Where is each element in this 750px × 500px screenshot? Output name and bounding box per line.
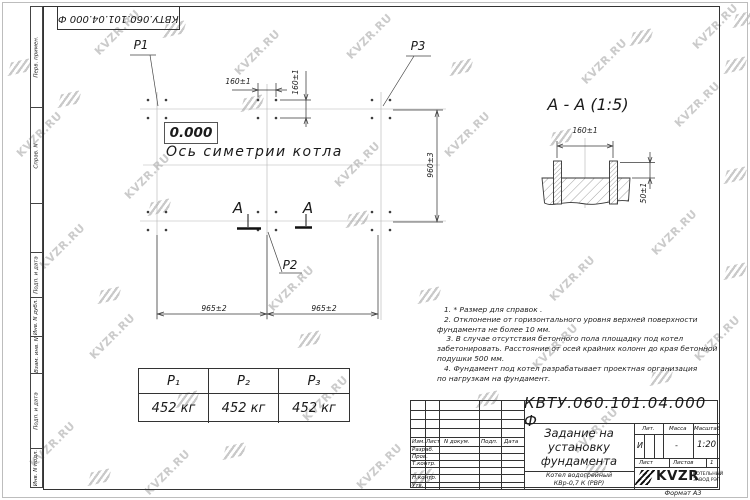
document-number: КВТУ.060.101.04.000 Ф: [524, 401, 719, 423]
lit-label: Лит.: [642, 426, 655, 432]
load-table-value: 452 кг: [209, 394, 279, 423]
load-table: Р₁ Р₂ Р₃ 452 кг 452 кг 452 кг: [138, 368, 350, 422]
lit-value: И: [637, 441, 643, 450]
title-block: Изм. Лист N докум. Подп. Дата Разраб. Пр…: [410, 400, 718, 488]
role-prov: Пров.: [412, 454, 428, 460]
section-dim-height: 50±1: [639, 175, 649, 211]
mass-label: Масса: [669, 426, 687, 432]
plan-dimensions: [157, 71, 443, 319]
format-label: Формат А3: [648, 489, 718, 497]
load-table-header: Р₁: [139, 369, 209, 394]
rev-header-list: Лист: [426, 439, 440, 445]
load-table-header: Р₃: [279, 369, 349, 394]
note-line: 3. В случае отсутствия бетонного пола пл…: [437, 334, 729, 344]
load-table-value: 452 кг: [139, 394, 209, 423]
dim-960: 960±3: [426, 145, 436, 185]
note-line: 2. Отклонение от горизонтального уровня …: [437, 315, 729, 325]
mass-value: -: [675, 441, 678, 450]
note-line: 4. Фундамент под котел разрабатывает про…: [437, 364, 729, 374]
dim-965-left: 965±2: [178, 304, 250, 313]
section-letter-left: А: [228, 199, 248, 217]
product-name: Котел водогрейный КВр-0,7 К (РВР): [524, 471, 634, 489]
load-table-value: 452 кг: [279, 394, 349, 423]
role-tkontr: Т.контр.: [412, 461, 436, 467]
load-label-p1: P1: [128, 38, 154, 52]
drawing-sheet: KVZR.RUKVZR.RUKVZR.RUKVZR.RUKVZR.RUKVZR.…: [0, 0, 750, 500]
dim-160-top: 160±1: [218, 77, 258, 86]
load-leaders: [130, 55, 431, 273]
role-razrab: Разраб.: [412, 447, 434, 453]
corner-stamp: КВТУ.060.101.04.000 Ф: [57, 6, 180, 30]
sheets-label: Листов: [673, 460, 694, 466]
scale-value: 1:20: [697, 440, 716, 450]
sheet-label: Лист: [639, 460, 653, 466]
corner-stamp-text: КВТУ.060.101.04.000 Ф: [58, 13, 179, 24]
axis-label: Ось симетрии котла: [166, 144, 343, 160]
anchor-bolt-left: [554, 161, 562, 204]
kvzr-logo-subtitle: КОТЕЛЬНЫЙ ЗАВОД РЭП: [693, 472, 723, 483]
rev-header-izm: Изм.: [412, 439, 425, 445]
sheets-value: 1: [710, 460, 714, 466]
note-line: фундамента не более 10 мм.: [437, 325, 729, 335]
load-table-header: Р₂: [209, 369, 279, 394]
kvzr-logo-icon: [635, 470, 656, 485]
load-label-p2: P2: [277, 258, 303, 272]
drawing-title: Задание на установку фундамента: [524, 424, 634, 470]
dim-160-vert: 160±1: [291, 62, 301, 102]
rev-header-podp: Подп.: [481, 439, 498, 445]
rev-header-data: Дата: [504, 439, 518, 445]
note-line: подушки 500 мм.: [437, 354, 729, 364]
note-line: по нагрузкам на фундамент.: [437, 374, 729, 384]
role-nkontr: Н.контр.: [412, 475, 437, 481]
anchor-bolt-right: [610, 161, 618, 204]
note-line: 1. * Размер для справок .: [437, 305, 729, 315]
load-label-p3: P3: [405, 39, 431, 53]
scale-label: Масштаб: [694, 426, 720, 432]
section-title: А - А (1:5): [528, 95, 648, 114]
note-line: забетонировать. Расстояние от осей крайн…: [437, 344, 729, 354]
elevation-mark: 0.000: [164, 122, 218, 144]
section-letter-right: А: [298, 199, 318, 217]
technical-notes: 1. * Размер для справок . 2. Отклонение …: [437, 305, 729, 383]
plan-centerlines: [140, 84, 446, 320]
rev-header-ndoc: N докум.: [444, 439, 470, 445]
section-dim-width: 160±1: [557, 126, 613, 135]
role-utv: Утв.: [412, 483, 424, 489]
dim-965-right: 965±2: [288, 304, 360, 313]
